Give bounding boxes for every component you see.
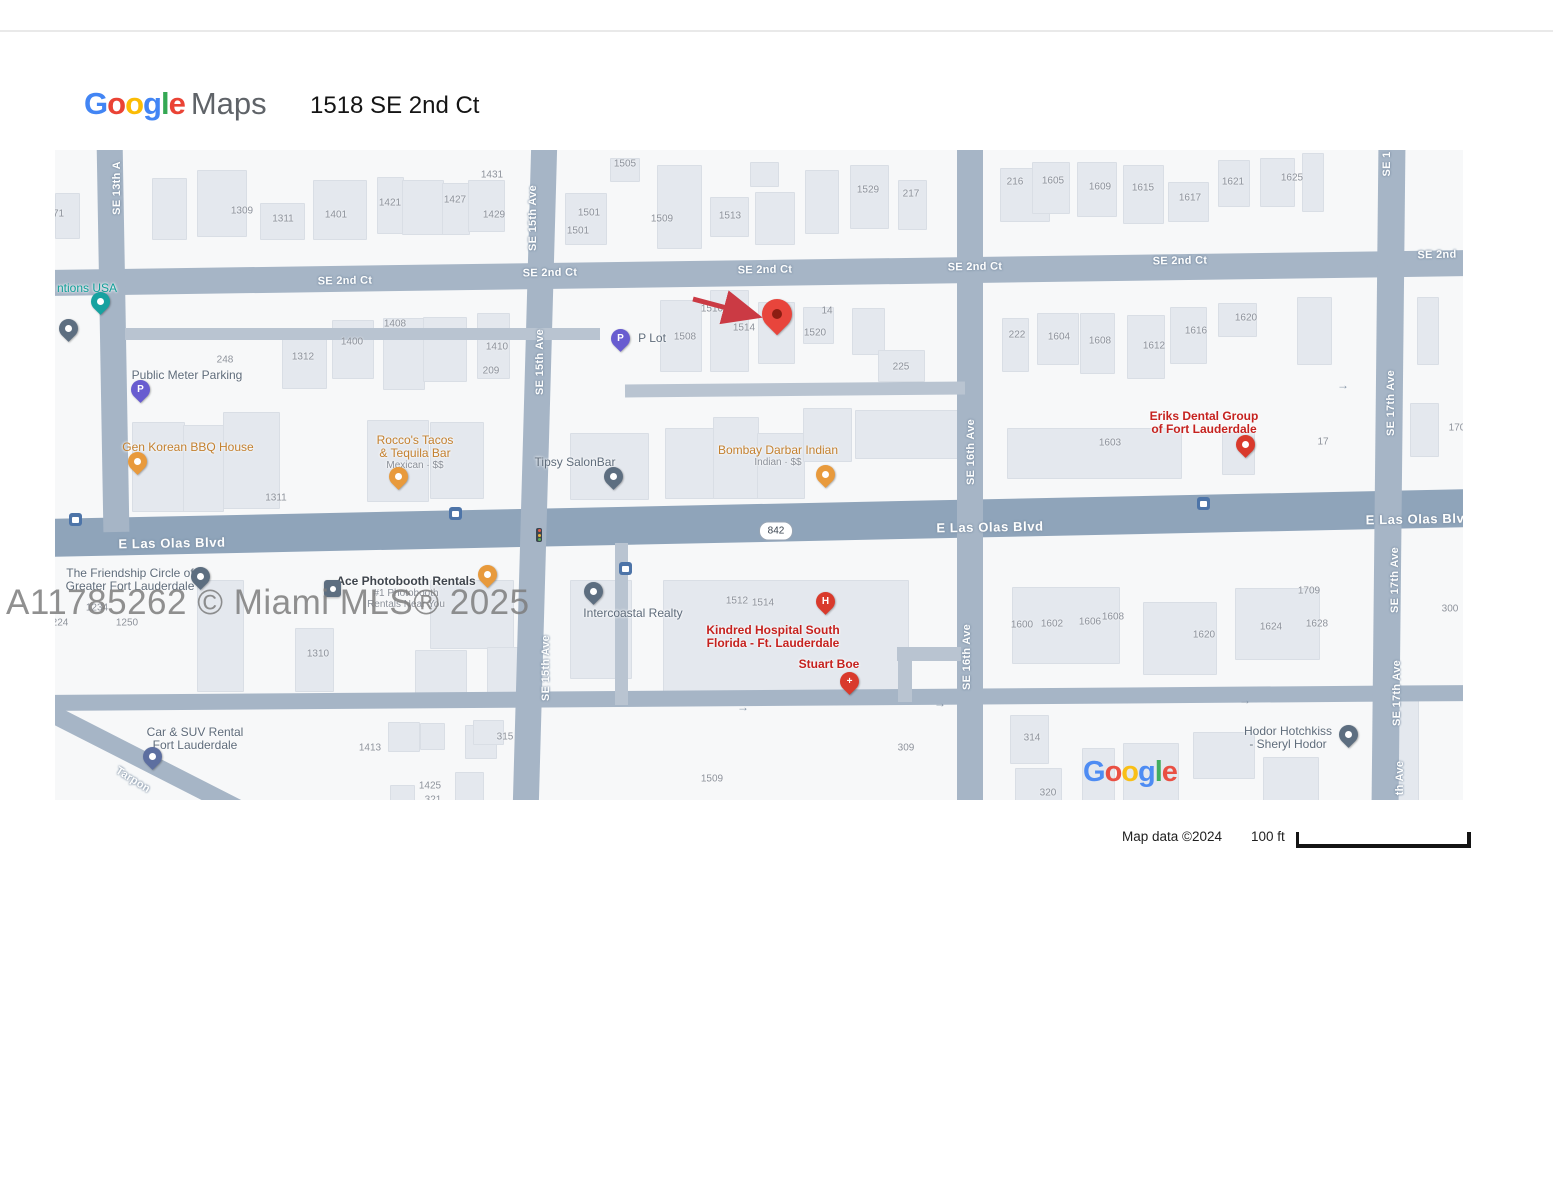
road-segment [625,382,965,398]
building [755,192,795,245]
stuart-boe-pin[interactable]: + [836,668,863,695]
street-label: SE 2nd [1417,249,1456,262]
street-label: SE 15th Ave [527,185,539,251]
building-number: 170 [1449,423,1463,434]
mls-watermark: A11785262 © Miami MLS® 2025 [6,583,530,623]
building [197,170,247,237]
building-number: 216 [1007,177,1024,188]
building [390,785,415,800]
building-number: 1605 [1042,176,1064,187]
building-number: 1608 [1102,612,1124,623]
street-label: SE 2nd Ct [523,267,578,280]
inventions-usa-pin[interactable] [87,288,114,315]
business-pin[interactable] [55,315,81,342]
car-suv-rental-pin[interactable] [139,743,166,770]
traffic-light-icon [536,528,542,542]
building [1032,162,1070,214]
building-number: 315 [497,732,514,743]
bus-stop-icon[interactable] [1197,497,1210,510]
poi-label[interactable]: Intercoastal Realty [583,607,682,620]
street-label: SE 2nd Ct [948,261,1003,274]
maps-logo-text: Maps [191,86,267,121]
building-number: 1413 [359,743,381,754]
poi-label[interactable]: Eriks Dental Groupof Fort Lauderdale [1150,410,1259,436]
building-number: 209 [483,366,500,377]
building [1297,297,1332,365]
building [468,180,505,232]
building [665,428,714,499]
building-number: 314 [1024,733,1041,744]
building-number: 248 [217,355,234,366]
building [1302,153,1324,212]
building [850,165,889,229]
building [295,628,334,692]
map-data-text: Map data ©2024 [1122,829,1222,844]
google-maps-logo: GoogleMaps [84,86,267,122]
bus-stop-icon[interactable] [69,513,82,526]
street-label: SE 17th Ave [1391,660,1403,726]
road-direction-arrow: → [1239,693,1251,707]
building [1410,403,1439,457]
building [442,183,470,235]
building-number: 1612 [1143,341,1165,352]
building-number: 1431 [481,170,503,181]
building [565,193,607,245]
building-number: 1309 [231,206,253,217]
eriks-dental-pin[interactable] [1232,431,1259,458]
hodor-hotchkiss-pin[interactable] [1335,721,1362,748]
poi-label[interactable]: P Lot [638,332,666,345]
building [420,723,445,750]
building [423,317,467,382]
building-number: 1603 [1099,438,1121,449]
road-segment [898,647,912,702]
building-number: 1625 [1281,173,1303,184]
building-number: 309 [898,743,915,754]
poi-label[interactable]: Stuart Boe [799,658,860,671]
street-label: SE 2nd Ct [1153,255,1208,268]
building-number: 1520 [804,328,826,339]
roccos-tacos-pin[interactable] [385,463,412,490]
intercoastal-realty-pin[interactable] [580,578,607,605]
building-number: 1617 [1179,193,1201,204]
building-number: 1606 [1079,617,1101,628]
building-number: 17 [1317,437,1328,448]
building-number: 1624 [1260,622,1282,633]
road-direction-arrow: → [1337,378,1349,392]
street-label: E Las Olas Blv [1366,511,1463,528]
building-number: 1615 [1132,183,1154,194]
bombay-darbar-pin[interactable] [812,461,839,488]
gen-korean-bbq-pin[interactable] [124,448,151,475]
destination-arrow [685,290,775,335]
building-number: 222 [1009,330,1026,341]
building-number: 1513 [719,211,741,222]
google-map-logo: Google [1083,756,1177,789]
building-number: 225 [893,362,910,373]
building-number: 1400 [341,337,363,348]
street-label: SE 15th Ave [534,329,546,395]
poi-label[interactable]: Kindred Hospital SouthFlorida - Ft. Laud… [706,624,839,650]
building-number: 1501 [567,226,589,237]
street-label: SE 2nd Ct [318,275,373,288]
building-number: 1709 [1298,586,1320,597]
building [1123,165,1164,224]
building-number: 1529 [857,185,879,196]
building-number: 1602 [1041,619,1063,630]
building [1263,757,1319,800]
building-number: 320 [1040,788,1057,799]
building-number: 1427 [444,195,466,206]
road-direction-arrow: → [934,696,946,710]
building-number: 1620 [1235,313,1257,324]
building-number: 1514 [752,598,774,609]
building-number: 1616 [1185,326,1207,337]
building [657,165,702,249]
page-title: 1518 SE 2nd Ct [310,92,479,120]
building [1002,318,1029,372]
building-number: 1501 [578,208,600,219]
building-number: 1311 [265,493,287,504]
tipsy-salonbar-pin[interactable] [600,463,627,490]
building-number: 1509 [701,774,723,785]
route-shield-842: 842 [759,522,793,541]
building [898,180,927,230]
street-label: th Ave [1394,761,1406,796]
google-logo-text: Google [84,86,185,121]
building [805,170,839,234]
public-meter-parking-pin[interactable]: P [127,376,154,403]
building [152,178,187,240]
building-number: 1425 [419,781,441,792]
building-number: 300 [1442,604,1459,615]
street-label: SE 17th Ave [1389,547,1401,613]
building [402,180,444,235]
bus-stop-icon[interactable] [619,562,632,575]
building-number: 1600 [1011,620,1033,631]
poi-label[interactable]: Rocco's Tacos& Tequila BarMexican · $$ [377,434,454,471]
building-number: 1310 [307,649,329,660]
building [852,308,885,355]
road-direction-arrow: → [737,700,749,714]
building-number: 1512 [726,596,748,607]
building-number: 1311 [272,214,294,225]
building [455,772,484,800]
street-label: E Las Olas Blvd [118,535,226,552]
street-label: SE 17th Ave [1385,370,1397,436]
scale-bar [1296,832,1471,848]
kindred-hospital-pin[interactable]: H [812,588,839,615]
street-label: SE 1 [1381,151,1393,176]
building-number: 14 [821,306,832,317]
building [750,162,779,187]
building-number: 1620 [1193,630,1215,641]
building-number: 1628 [1306,619,1328,630]
bus-stop-icon[interactable] [449,507,462,520]
building-number: 1604 [1048,332,1070,343]
building-number: 1312 [292,352,314,363]
building [855,410,962,459]
street-label: SE 13th A [111,161,123,215]
poi-label[interactable]: Hodor Hotchkiss- Sheryl Hodor [1244,725,1332,751]
building-number: 1505 [614,159,636,170]
building-number: 1401 [325,210,347,221]
map-canvas[interactable]: 1271130913111401142114271429143115051501… [55,150,1463,800]
top-divider [0,30,1553,32]
building-number: 1408 [384,319,406,330]
building-number: 217 [903,189,920,200]
scale-label: 100 ft [1251,829,1285,844]
street-label: SE 16th Ave [965,419,977,485]
building-number: 1421 [379,198,401,209]
building [183,425,224,512]
street-label: SE 2nd Ct [738,264,793,277]
page: GoogleMaps 1518 SE 2nd Ct 12711309131114… [0,0,1553,1200]
building [1417,297,1439,365]
street-label: E Las Olas Blvd [936,519,1044,536]
building-number: 1609 [1089,182,1111,193]
building-number: 1410 [486,342,508,353]
building-number: 1509 [651,214,673,225]
p-lot-pin[interactable]: P [607,325,634,352]
building-number: 1271 [55,209,64,220]
arrow-icon [685,290,775,330]
building [388,722,420,752]
street-label: SE 16th Ave [961,624,973,690]
building-number: 1608 [1089,336,1111,347]
street-label: SE 15th Ave [540,635,552,701]
building-number: 321 [425,795,442,801]
building-number: 1429 [483,210,505,221]
building-number: 1621 [1222,177,1244,188]
